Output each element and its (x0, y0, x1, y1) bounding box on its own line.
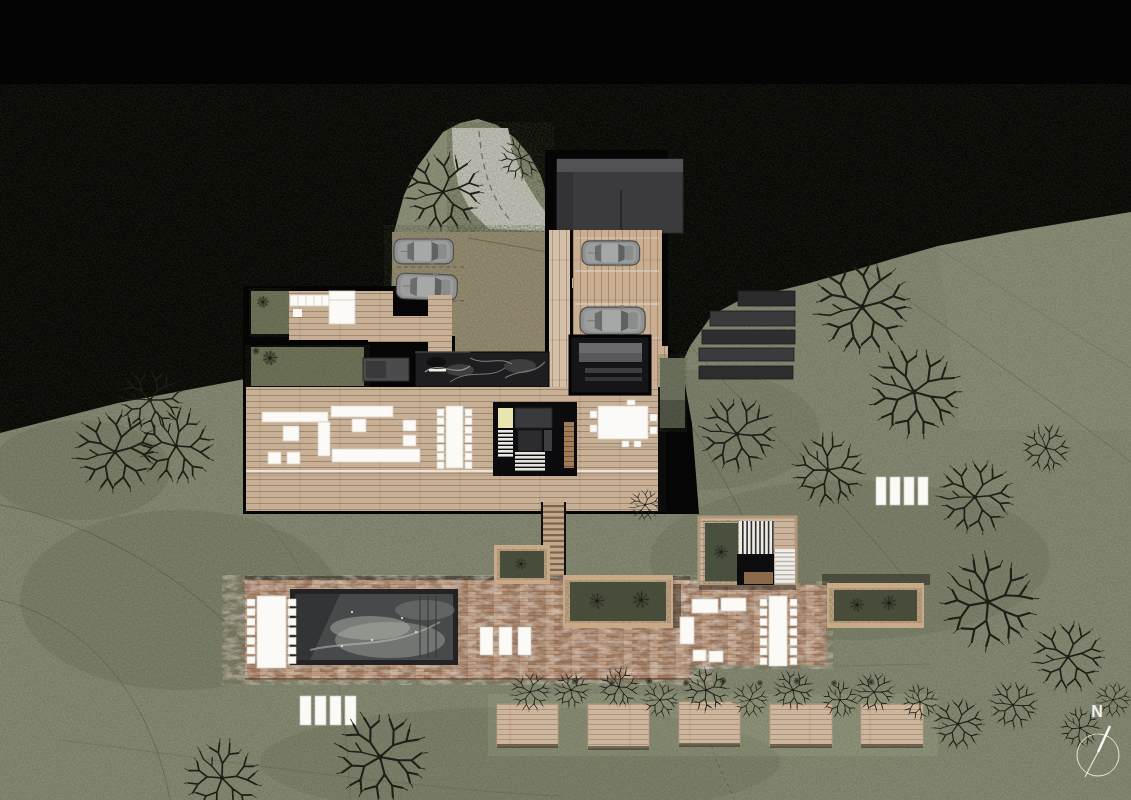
sun-loungers (904, 477, 914, 505)
dresser (293, 309, 302, 317)
boardwalk (549, 230, 570, 392)
shape (699, 585, 796, 590)
wall-line (570, 230, 573, 278)
stair-treads (498, 454, 513, 457)
stair-tread (542, 511, 565, 513)
site-plan: N (0, 0, 1131, 800)
sofa (331, 406, 393, 417)
vestibule-panel (579, 353, 642, 362)
sun-loungers (480, 627, 531, 655)
pavilion-stair-treads (775, 561, 795, 562)
outdoor-chairs (760, 648, 767, 655)
sun-loungers (518, 627, 531, 655)
louver-slats (764, 521, 766, 554)
stair-tread (542, 528, 565, 530)
shape (415, 631, 417, 633)
shape (770, 744, 832, 748)
stair-treads (498, 442, 513, 445)
outdoor-sofa (692, 599, 718, 613)
sun-loungers (300, 696, 311, 725)
outdoor-chairs (288, 657, 296, 664)
stair-treads (498, 434, 513, 437)
stair-treads (515, 452, 545, 455)
outdoor-chairs (790, 599, 797, 606)
outdoor-chairs (790, 619, 797, 626)
outdoor-chairs (760, 638, 767, 645)
deck-step-line (246, 470, 660, 472)
stair-tread (542, 522, 565, 524)
dining-chairs (437, 435, 444, 442)
dining-chairs (465, 409, 472, 416)
planter-bed (834, 590, 917, 621)
stair-tread (542, 540, 565, 542)
garage (557, 159, 683, 233)
kitchen-box (518, 430, 542, 451)
row-item (564, 456, 574, 457)
outdoor-chairs (760, 628, 767, 635)
outdoor-chairs (288, 628, 296, 635)
pavilion-stair-treads (775, 583, 795, 584)
row-item (564, 451, 574, 452)
sun-loungers (890, 477, 900, 505)
meadow-platforms (488, 694, 938, 756)
dining-table (446, 406, 463, 468)
car (582, 240, 640, 267)
right-tint (938, 212, 1131, 430)
louver-slats (746, 521, 748, 554)
outdoor-dining-table (769, 596, 787, 666)
wood-platform (588, 704, 649, 748)
stair-treads (498, 450, 513, 453)
dining-chairs (465, 409, 472, 469)
kitchen-mat (498, 408, 513, 428)
side-table (352, 419, 366, 432)
planter-bed (570, 582, 666, 621)
outdoor-chairs (760, 619, 767, 626)
outdoor-chairs (288, 599, 296, 664)
louver-slats (768, 521, 770, 554)
outdoor-chairs (790, 628, 797, 635)
coffee-table (283, 426, 299, 441)
stair-treads (515, 456, 545, 459)
wood-platform (770, 704, 832, 746)
dining-chairs (465, 453, 472, 460)
stair-treads (515, 460, 545, 463)
compass-circle (1077, 734, 1119, 776)
retaining-bar (702, 330, 795, 344)
deck-step-line (246, 475, 660, 476)
outdoor-chairs (247, 618, 255, 625)
louver-slats (755, 521, 757, 554)
stair-treads (498, 446, 513, 449)
dining-chairs (437, 409, 444, 416)
pavilion-stair-treads (775, 578, 795, 579)
sun-loungers (330, 696, 341, 725)
chaise (680, 617, 694, 644)
outdoor-chairs (760, 599, 767, 665)
row-item (564, 461, 574, 462)
stair-treads (498, 430, 513, 433)
white-bench (429, 369, 446, 372)
vestibule-panel (579, 343, 642, 353)
vestibule-step (585, 377, 642, 381)
dining-chairs (465, 444, 472, 451)
side-table (709, 651, 723, 662)
shape (341, 645, 343, 647)
sun-loungers (499, 627, 512, 655)
sun-loungers (315, 696, 326, 725)
shape (401, 617, 403, 619)
sofa (262, 412, 328, 422)
outdoor-chairs (247, 609, 255, 616)
courtyard (251, 291, 289, 334)
shape (504, 359, 536, 373)
outdoor-chairs (247, 637, 255, 644)
dining-chairs (437, 462, 444, 469)
outdoor-chairs (247, 599, 255, 606)
bar-stool (590, 425, 597, 432)
shape (861, 744, 923, 748)
outdoor-chairs (790, 599, 797, 665)
dining-chairs (437, 444, 444, 451)
dining-chairs (437, 418, 444, 425)
outdoor-chairs (247, 599, 255, 664)
stair-treads (498, 438, 513, 441)
shape (679, 743, 740, 747)
outdoor-chairs (247, 628, 255, 635)
outdoor-chairs (288, 637, 296, 644)
louver-slats (751, 521, 753, 554)
stair-tread (542, 505, 565, 507)
outdoor-chairs (790, 609, 797, 616)
outdoor-chairs (288, 647, 296, 654)
pavilion-stair-treads (775, 556, 795, 557)
bar-stool (627, 400, 635, 405)
shape (564, 502, 566, 584)
row-item (564, 436, 574, 437)
stair-treads (515, 464, 545, 467)
stair-tread (542, 517, 565, 519)
outdoor-chairs (790, 638, 797, 645)
counter-inner (366, 361, 386, 378)
living-deck (246, 387, 666, 511)
outdoor-chairs (247, 657, 255, 664)
outdoor-chairs (288, 618, 296, 625)
bar-stool (590, 411, 597, 418)
outdoor-chairs (288, 609, 296, 616)
armchair (268, 452, 281, 464)
wood-platform (497, 704, 558, 746)
bed (329, 291, 355, 324)
car (394, 238, 454, 266)
outdoor-chairs (760, 609, 767, 616)
kitchen-box (544, 430, 552, 451)
outdoor-table (257, 596, 286, 668)
dining-chairs (465, 427, 472, 434)
outdoor-chairs (247, 647, 255, 654)
north-label: N (1091, 703, 1103, 720)
pavilion-wood-floor (744, 572, 773, 584)
sofa (332, 449, 420, 462)
row-item (564, 441, 574, 442)
pavilion (699, 517, 796, 590)
dining-chairs (437, 453, 444, 460)
row-item (564, 426, 574, 427)
outdoor-sofa (721, 598, 746, 611)
row-item (564, 446, 574, 447)
pavilion-stair-treads (775, 570, 795, 571)
kitchen-island (598, 406, 648, 439)
shape (371, 639, 373, 641)
armchair (403, 435, 416, 446)
kitchen-counter (515, 408, 552, 428)
compass-needle-tail (1085, 752, 1098, 777)
dining-chairs (465, 418, 472, 425)
sun-loungers (918, 477, 928, 505)
shape (588, 746, 649, 750)
compass: N (1070, 698, 1128, 796)
dining-chairs (437, 427, 444, 434)
louver-slats (759, 521, 761, 554)
bar-stool (634, 441, 641, 447)
water-reflection (395, 600, 455, 620)
pavilion-stair-treads (775, 565, 795, 566)
dining-chairs (465, 435, 472, 442)
louver-slats (742, 521, 744, 554)
retaining-bar (699, 366, 793, 379)
retaining-bar (710, 311, 795, 326)
outdoor-chairs (288, 599, 296, 606)
garage-roof-band (557, 159, 683, 172)
pavilion-stair-treads (775, 574, 795, 575)
sun-loungers (876, 477, 886, 505)
outdoor-chairs (790, 648, 797, 655)
armchair (403, 420, 416, 431)
shape (446, 364, 474, 376)
armchair (287, 452, 300, 464)
retaining-walls (699, 291, 795, 379)
vestibule-step (585, 368, 642, 373)
shape (497, 744, 558, 748)
garage-roof-notch (557, 172, 573, 233)
shape (351, 611, 353, 613)
outdoor-chairs (760, 658, 767, 665)
row-item (564, 466, 574, 467)
dining-chairs (437, 409, 444, 469)
water-reflection (330, 616, 410, 640)
retaining-bar (699, 348, 794, 361)
row-item (564, 431, 574, 432)
wardrobe (290, 295, 331, 306)
outdoor-chairs (790, 658, 797, 665)
sun-loungers (345, 696, 356, 725)
bar-stool (650, 414, 657, 421)
shape (660, 400, 685, 428)
pavilion-stair-treads (775, 552, 795, 553)
stair-tread (542, 534, 565, 536)
retaining-bar (738, 291, 795, 306)
wood-platform (861, 704, 923, 746)
dining-chairs (465, 462, 472, 469)
bar-stool (622, 441, 629, 447)
site-plan-drawing (0, 0, 1131, 800)
bar-stool (650, 427, 657, 434)
side-table (693, 650, 706, 661)
outdoor-chairs (760, 599, 767, 606)
shape (426, 357, 446, 367)
sun-loungers (480, 627, 493, 655)
sofa (318, 422, 330, 456)
wood-platform (679, 702, 740, 745)
stair-treads (515, 468, 545, 471)
car (580, 305, 645, 335)
louver-slats (772, 521, 774, 554)
compass-needle (1098, 726, 1110, 752)
